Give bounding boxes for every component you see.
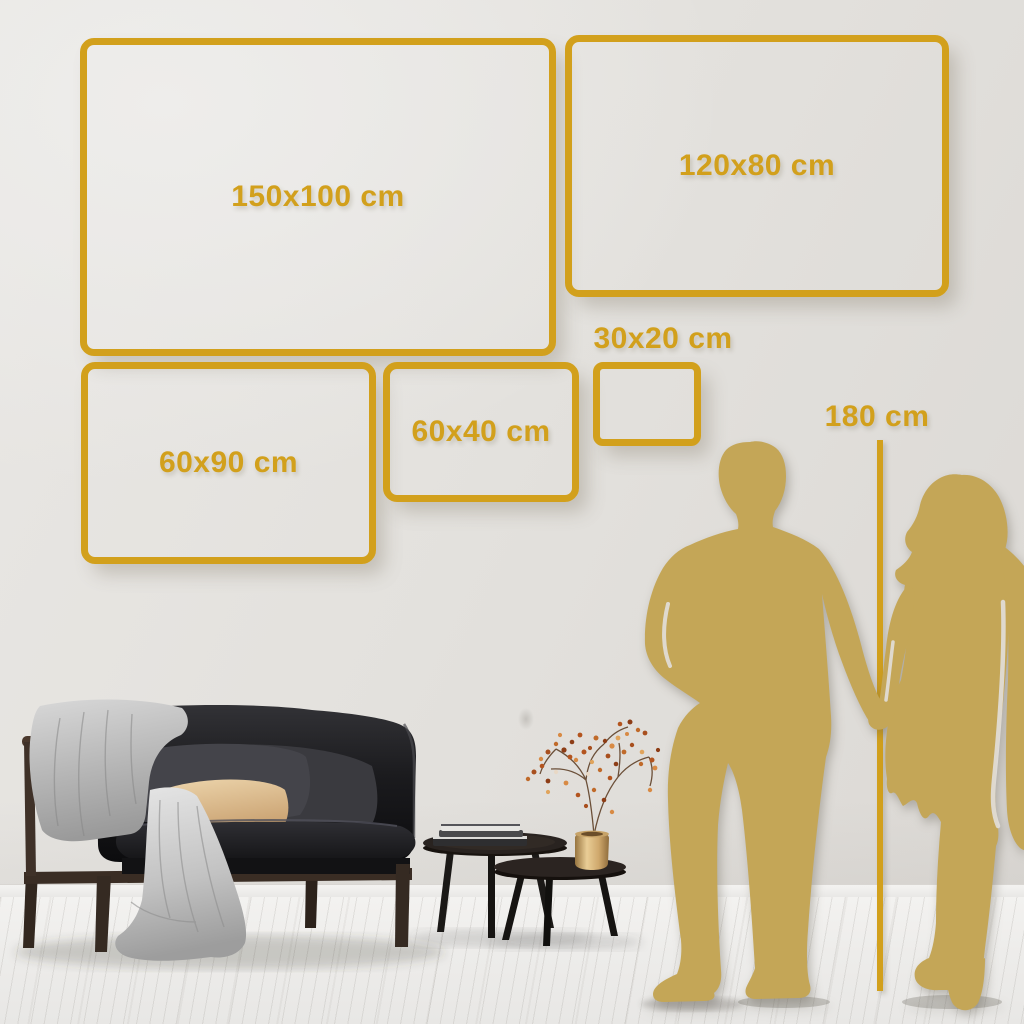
couple-silhouette bbox=[0, 0, 1024, 1024]
man-silhouette bbox=[645, 441, 890, 1002]
size-guide-scene: 150x100 cm 120x80 cm 60x90 cm 60x40 cm 3… bbox=[0, 0, 1024, 1024]
woman-silhouette bbox=[885, 474, 1009, 991]
